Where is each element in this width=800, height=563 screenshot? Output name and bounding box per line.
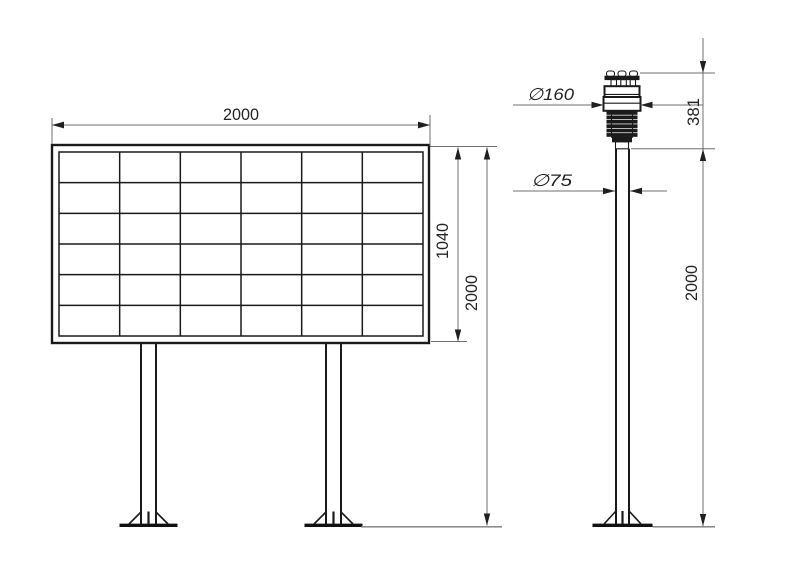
shield-rib [607,134,637,137]
arrowhead [592,102,604,108]
dim-panel-height-label: 1040 [433,223,452,259]
cad-drawing-canvas: 2000 1040 2000 [0,0,800,563]
panel-frame [52,145,429,343]
dim-pole-height-label: 2000 [682,265,701,301]
dim-pole-diameter-label: ∅75 [531,171,573,190]
sensor-adapter-collar [613,137,632,142]
gusset [604,512,616,525]
dim-head-diameter-label: ∅160 [527,85,575,104]
dim-board-width-label: 2000 [223,105,259,124]
panel-grid-lines [59,152,423,336]
gusset [129,513,141,525]
arrowhead [603,188,615,194]
right-leg-base [305,512,363,526]
mounting-pole [616,149,629,525]
shield-rib [607,125,637,128]
arrowhead [700,61,706,73]
arrowhead [455,330,461,342]
arrowhead [484,514,490,526]
arrowhead [641,102,653,108]
board-legs [120,344,363,525]
arrowhead [52,122,64,129]
weather-station-view: ∅160 ∅75 381 2000 [513,38,715,527]
board-dimensions: 2000 1040 2000 [52,105,497,526]
gusset [342,513,354,525]
technical-drawing: 2000 1040 2000 [0,0,800,563]
sensor-head [604,71,641,149]
dim-head-height-label: 381 [684,98,703,126]
left-leg-base [120,512,178,526]
sensor-cap-knob [630,71,638,77]
sensor-cap-knob [607,71,615,77]
shield-rib [607,112,637,115]
arrowhead [418,122,430,129]
radiation-shield [607,111,637,137]
dim-board-overall-height-label: 2000 [462,275,481,311]
arrowhead [700,514,706,526]
display-board-view: 2000 1040 2000 [52,105,502,527]
sensor-upper-body [605,86,640,97]
sensor-lower-body [604,97,641,111]
gusset [314,513,326,525]
shield-rib [607,116,637,119]
gusset [630,512,642,525]
sensor-cap-knob [618,71,626,77]
arrowhead [700,149,706,161]
pole-base [593,511,653,525]
shield-rib [607,129,637,132]
arrowhead [630,188,642,194]
gusset [157,513,169,525]
shield-rib [607,120,637,123]
sensor-adapter-neck [616,142,629,149]
arrowhead [455,148,461,160]
arrowhead [484,148,490,160]
